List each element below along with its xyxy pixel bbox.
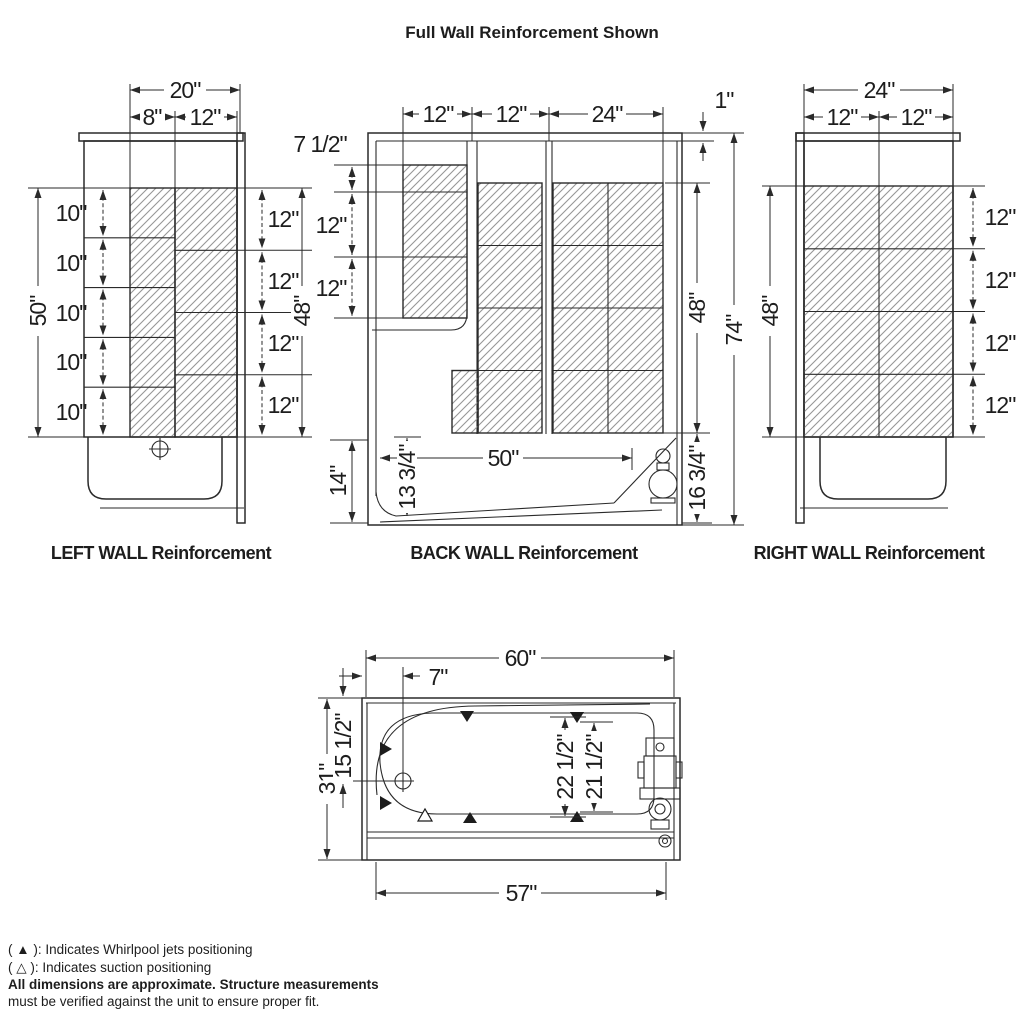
dim-left-right-row1: 12" bbox=[268, 206, 300, 232]
left-wall-diagram: 20" 8" 12" 50" 10" 10" 10" 10" 10" 12" 1… bbox=[25, 77, 315, 563]
legend: ( ▲ ): Indicates Whirlpool jets position… bbox=[8, 942, 379, 1009]
legend-suction-line: ( △ ): Indicates suction positioning bbox=[8, 960, 211, 975]
dim-left-row1: 10" bbox=[56, 200, 88, 226]
back-wall-hatch-small bbox=[452, 371, 478, 434]
legend-note-bold: All dimensions are approximate. Structur… bbox=[8, 977, 379, 992]
dim-plan-jet-span-inner: 21 1/2" bbox=[581, 734, 607, 800]
deck-fitting-icon bbox=[659, 835, 671, 847]
whirlpool-jet-marker bbox=[380, 796, 392, 810]
dim-left-total-height: 50" bbox=[25, 295, 51, 327]
dim-back-bottom-right: 16 3/4" bbox=[684, 445, 710, 511]
right-wall-corner-strip bbox=[796, 133, 804, 523]
dim-left-row4: 10" bbox=[56, 349, 88, 375]
legend-note-rest: must be verified against the unit to ens… bbox=[8, 994, 319, 1009]
dim-back-apron-height: 13 3/4" bbox=[394, 444, 420, 510]
dim-plan-base-width: 57" bbox=[506, 880, 538, 906]
suction-marker bbox=[418, 809, 432, 821]
dim-plan-width: 60" bbox=[505, 645, 537, 671]
dim-right-top-seg2: 12" bbox=[901, 104, 933, 130]
dim-left-row3: 10" bbox=[56, 300, 88, 326]
back-wall-diagram: 12" 12" 24" 1" 7 1/2" 12" 12" 50" 13 3/4… bbox=[293, 87, 747, 563]
right-wall-label: RIGHT WALL Reinforcement bbox=[754, 543, 985, 563]
tub-plan-view: 60" 7" 31" 15 1/2" 22 1/2" 21 1/2" 5 bbox=[314, 645, 682, 906]
dim-back-bottom-left: 14" bbox=[325, 465, 351, 497]
pump-icon bbox=[649, 449, 677, 503]
dim-plan-jet-span-outer: 22 1/2" bbox=[552, 734, 578, 800]
dim-left-top-seg1: 8" bbox=[143, 104, 163, 130]
dim-left-top-seg2: 12" bbox=[190, 104, 222, 130]
dim-back-left-top: 7 1/2" bbox=[293, 131, 347, 157]
tub-deck-outline bbox=[362, 698, 680, 860]
drain-target-icon bbox=[392, 770, 414, 792]
dim-right-row2: 12" bbox=[985, 267, 1017, 293]
dim-plan-drain-inset: 15 1/2" bbox=[330, 713, 356, 779]
dim-left-top-total: 20" bbox=[170, 77, 202, 103]
whirlpool-jet-marker bbox=[460, 711, 474, 722]
dim-plan-drain-offset: 7" bbox=[429, 664, 449, 690]
dim-back-total-height: 74" bbox=[721, 314, 747, 346]
drawing-canvas: Full Wall Reinforcement Shown 20" bbox=[0, 0, 1024, 1013]
dim-back-top-seg1: 12" bbox=[423, 101, 455, 127]
dim-back-top-seg2: 12" bbox=[496, 101, 528, 127]
dim-back-left-row1: 12" bbox=[316, 212, 348, 238]
back-wall-label: BACK WALL Reinforcement bbox=[410, 543, 638, 563]
left-wall-flange bbox=[79, 133, 243, 141]
dim-right-row1: 12" bbox=[985, 204, 1017, 230]
dim-left-right-row4: 12" bbox=[268, 392, 300, 418]
dim-left-hatch-height: 48" bbox=[289, 295, 315, 327]
dim-right-hatch-height: 48" bbox=[757, 295, 783, 327]
drain-target-icon bbox=[149, 438, 171, 460]
drawing-title: Full Wall Reinforcement Shown bbox=[405, 23, 658, 42]
left-wall-label: LEFT WALL Reinforcement bbox=[51, 543, 272, 563]
dim-right-row3: 12" bbox=[985, 330, 1017, 356]
right-wall-diagram: 24" 12" 12" 48" 12" 12" 12" 12" RIGHT WA… bbox=[754, 77, 1017, 563]
left-wall-tub bbox=[88, 437, 222, 499]
dim-right-top-seg1: 12" bbox=[827, 104, 859, 130]
pump-icon bbox=[638, 738, 682, 829]
dim-back-hatch-height: 48" bbox=[684, 292, 710, 324]
dim-back-left-row2: 12" bbox=[316, 275, 348, 301]
dim-back-top-gap: 1" bbox=[715, 87, 735, 113]
dim-back-deck-span: 50" bbox=[488, 445, 520, 471]
right-wall-flange bbox=[796, 133, 960, 141]
left-wall-corner-strip bbox=[237, 133, 245, 523]
dim-left-row2: 10" bbox=[56, 250, 88, 276]
legend-jets-line: ( ▲ ): Indicates Whirlpool jets position… bbox=[8, 942, 252, 957]
right-wall-tub bbox=[820, 437, 946, 499]
dim-right-top-total: 24" bbox=[864, 77, 896, 103]
tub-bowl-outline bbox=[380, 713, 654, 814]
back-wall-hatch-left bbox=[403, 165, 467, 318]
dim-left-row5: 10" bbox=[56, 399, 88, 425]
dim-right-row4: 12" bbox=[985, 392, 1017, 418]
dim-back-top-seg3: 24" bbox=[592, 101, 624, 127]
left-wall-hatch-col-8 bbox=[130, 188, 175, 437]
whirlpool-jet-marker bbox=[380, 742, 392, 756]
reinforcement-drawing: Full Wall Reinforcement Shown 20" bbox=[0, 0, 1024, 1013]
